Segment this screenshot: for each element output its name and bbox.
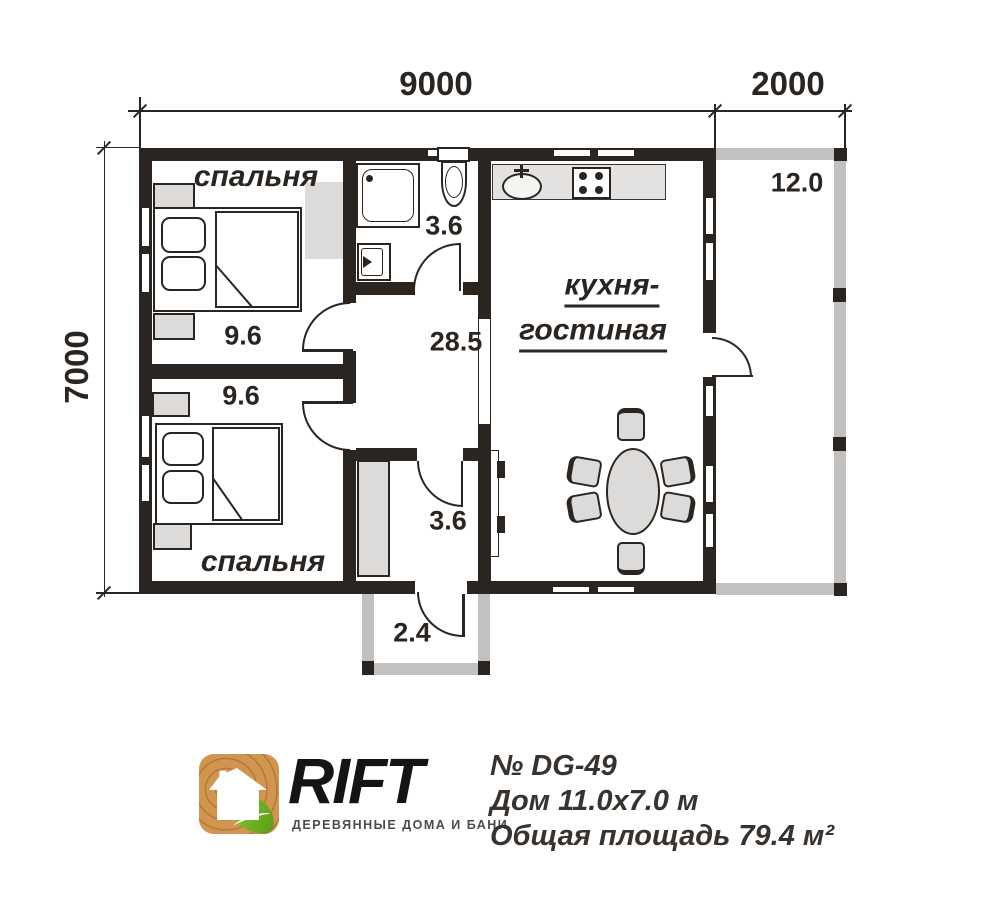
door-arc-terrace (712, 337, 752, 377)
room-label-bedroom-top: спальня (194, 160, 318, 194)
area-label-dressing: 3.6 (429, 506, 467, 537)
terrace-post (833, 288, 846, 302)
area-label-terrace: 12.0 (771, 168, 824, 199)
chair (565, 491, 602, 524)
chair (617, 542, 645, 575)
door-leaf-terrace (712, 375, 753, 378)
door-leaf-porch (462, 594, 465, 637)
wall-bedrooms-east-lower (343, 450, 356, 581)
dimension-line-left (104, 141, 106, 597)
plan-size: Дом 11.0х7.0 м (490, 785, 698, 818)
terrace-corner-post (834, 583, 847, 596)
porch-corner-post (478, 661, 490, 675)
stove-burner (595, 172, 603, 180)
porch-wall-right (478, 594, 490, 663)
window-bedroom-bottom (141, 415, 150, 458)
wall-bedroom-divider (139, 364, 356, 379)
area-label-hall: 28.5 (430, 327, 483, 358)
window-bedroom-top (141, 207, 150, 247)
window-kitchen-north (553, 149, 591, 157)
nightstand (153, 313, 195, 340)
wall-dressing-north-right (463, 448, 478, 461)
shower-drain (366, 175, 373, 182)
dimension-line-top (128, 110, 852, 112)
window-kitchen-south (552, 586, 590, 593)
stove-icon (572, 167, 611, 199)
stove-burner (579, 172, 587, 180)
window-kitchen-south (597, 586, 635, 593)
extension-line (96, 147, 140, 149)
pillow (161, 256, 206, 291)
blanket (215, 211, 299, 308)
stove-burner (579, 186, 587, 194)
blanket (212, 427, 280, 521)
tv-mount (497, 461, 505, 478)
window-kitchen-east (705, 242, 714, 281)
chair (659, 455, 696, 488)
door-leaf-dressing (461, 461, 464, 507)
blanket-fold (214, 429, 278, 519)
floor-plan-page: 9000 2000 7000 (0, 0, 987, 913)
extension-line (96, 592, 140, 594)
wall-bathroom-south-left (356, 282, 415, 295)
window-kitchen-east (705, 465, 714, 503)
door-leaf-bedroom-top (302, 349, 353, 352)
dining-table (606, 448, 660, 535)
pillow (162, 432, 204, 466)
porch-wall-bottom (362, 663, 490, 675)
tv-mount (497, 516, 505, 533)
dimension-height: 7000 (58, 330, 96, 403)
chair (565, 455, 602, 488)
stove-burner (595, 186, 603, 194)
window-kitchen-north (597, 149, 635, 157)
terrace-wall-right (834, 160, 846, 583)
terrace-wall-top (716, 148, 834, 160)
porch-wall-left (362, 594, 374, 663)
faucet-icon (514, 169, 529, 172)
wardrobe (357, 460, 390, 577)
toilet-seat (445, 166, 463, 198)
nightstand (153, 523, 192, 550)
porch-corner-post (362, 661, 374, 675)
chair (617, 408, 645, 441)
dimension-width-terrace: 2000 (751, 65, 824, 103)
window-bedroom-top (141, 253, 150, 293)
blanket-fold (217, 213, 297, 306)
window-kitchen-east (705, 197, 714, 235)
extension-line (714, 104, 716, 148)
room-label-bedroom-bottom: спальня (201, 545, 325, 579)
plan-model: № DG-49 (490, 750, 617, 783)
dimension-width-main: 9000 (399, 65, 472, 103)
door-arc-bathroom (413, 243, 460, 290)
terrace-corner-post (834, 148, 847, 161)
brand-tagline: ДЕРЕВЯННЫЕ ДОМА И БАНИ (292, 818, 508, 832)
wall-bedrooms-east-upper (343, 161, 356, 303)
window-kitchen-east (705, 513, 714, 548)
wall-bathroom-south-right (463, 282, 478, 295)
room-label-kitchen-living-1: кухня- (564, 269, 659, 308)
plan-total-area: Общая площадь 79.4 м² (490, 820, 834, 853)
door-leaf-bathroom (459, 243, 462, 291)
area-label-bedroom-bottom: 9.6 (222, 381, 260, 412)
window-bedroom-bottom (141, 464, 150, 502)
area-label-bathroom: 3.6 (425, 211, 463, 242)
washing-machine-arrow (363, 256, 372, 268)
door-leaf-bedroom-bottom (302, 401, 353, 404)
pillow (161, 217, 206, 253)
chair (659, 491, 696, 524)
extension-line (844, 104, 846, 148)
nightstand (153, 183, 195, 209)
wall-bedrooms-east-mid (343, 351, 356, 403)
door-arc-bedroom-bottom (302, 403, 350, 451)
logo-icon (199, 754, 279, 834)
brand-name: RIFT (288, 748, 422, 814)
area-label-bedroom-top: 9.6 (224, 321, 262, 352)
room-label-kitchen-living-2: гостиная (519, 314, 667, 353)
nightstand (152, 392, 190, 417)
door-arc-bedroom-top (302, 302, 350, 350)
area-label-porch: 2.4 (393, 618, 431, 649)
door-arc-dressing (417, 461, 463, 507)
window-kitchen-east (705, 385, 714, 417)
terrace-post (833, 437, 846, 451)
terrace-wall-bottom (716, 583, 834, 595)
toilet-tank (437, 147, 470, 162)
pillow (162, 470, 204, 504)
extension-line (139, 97, 141, 148)
